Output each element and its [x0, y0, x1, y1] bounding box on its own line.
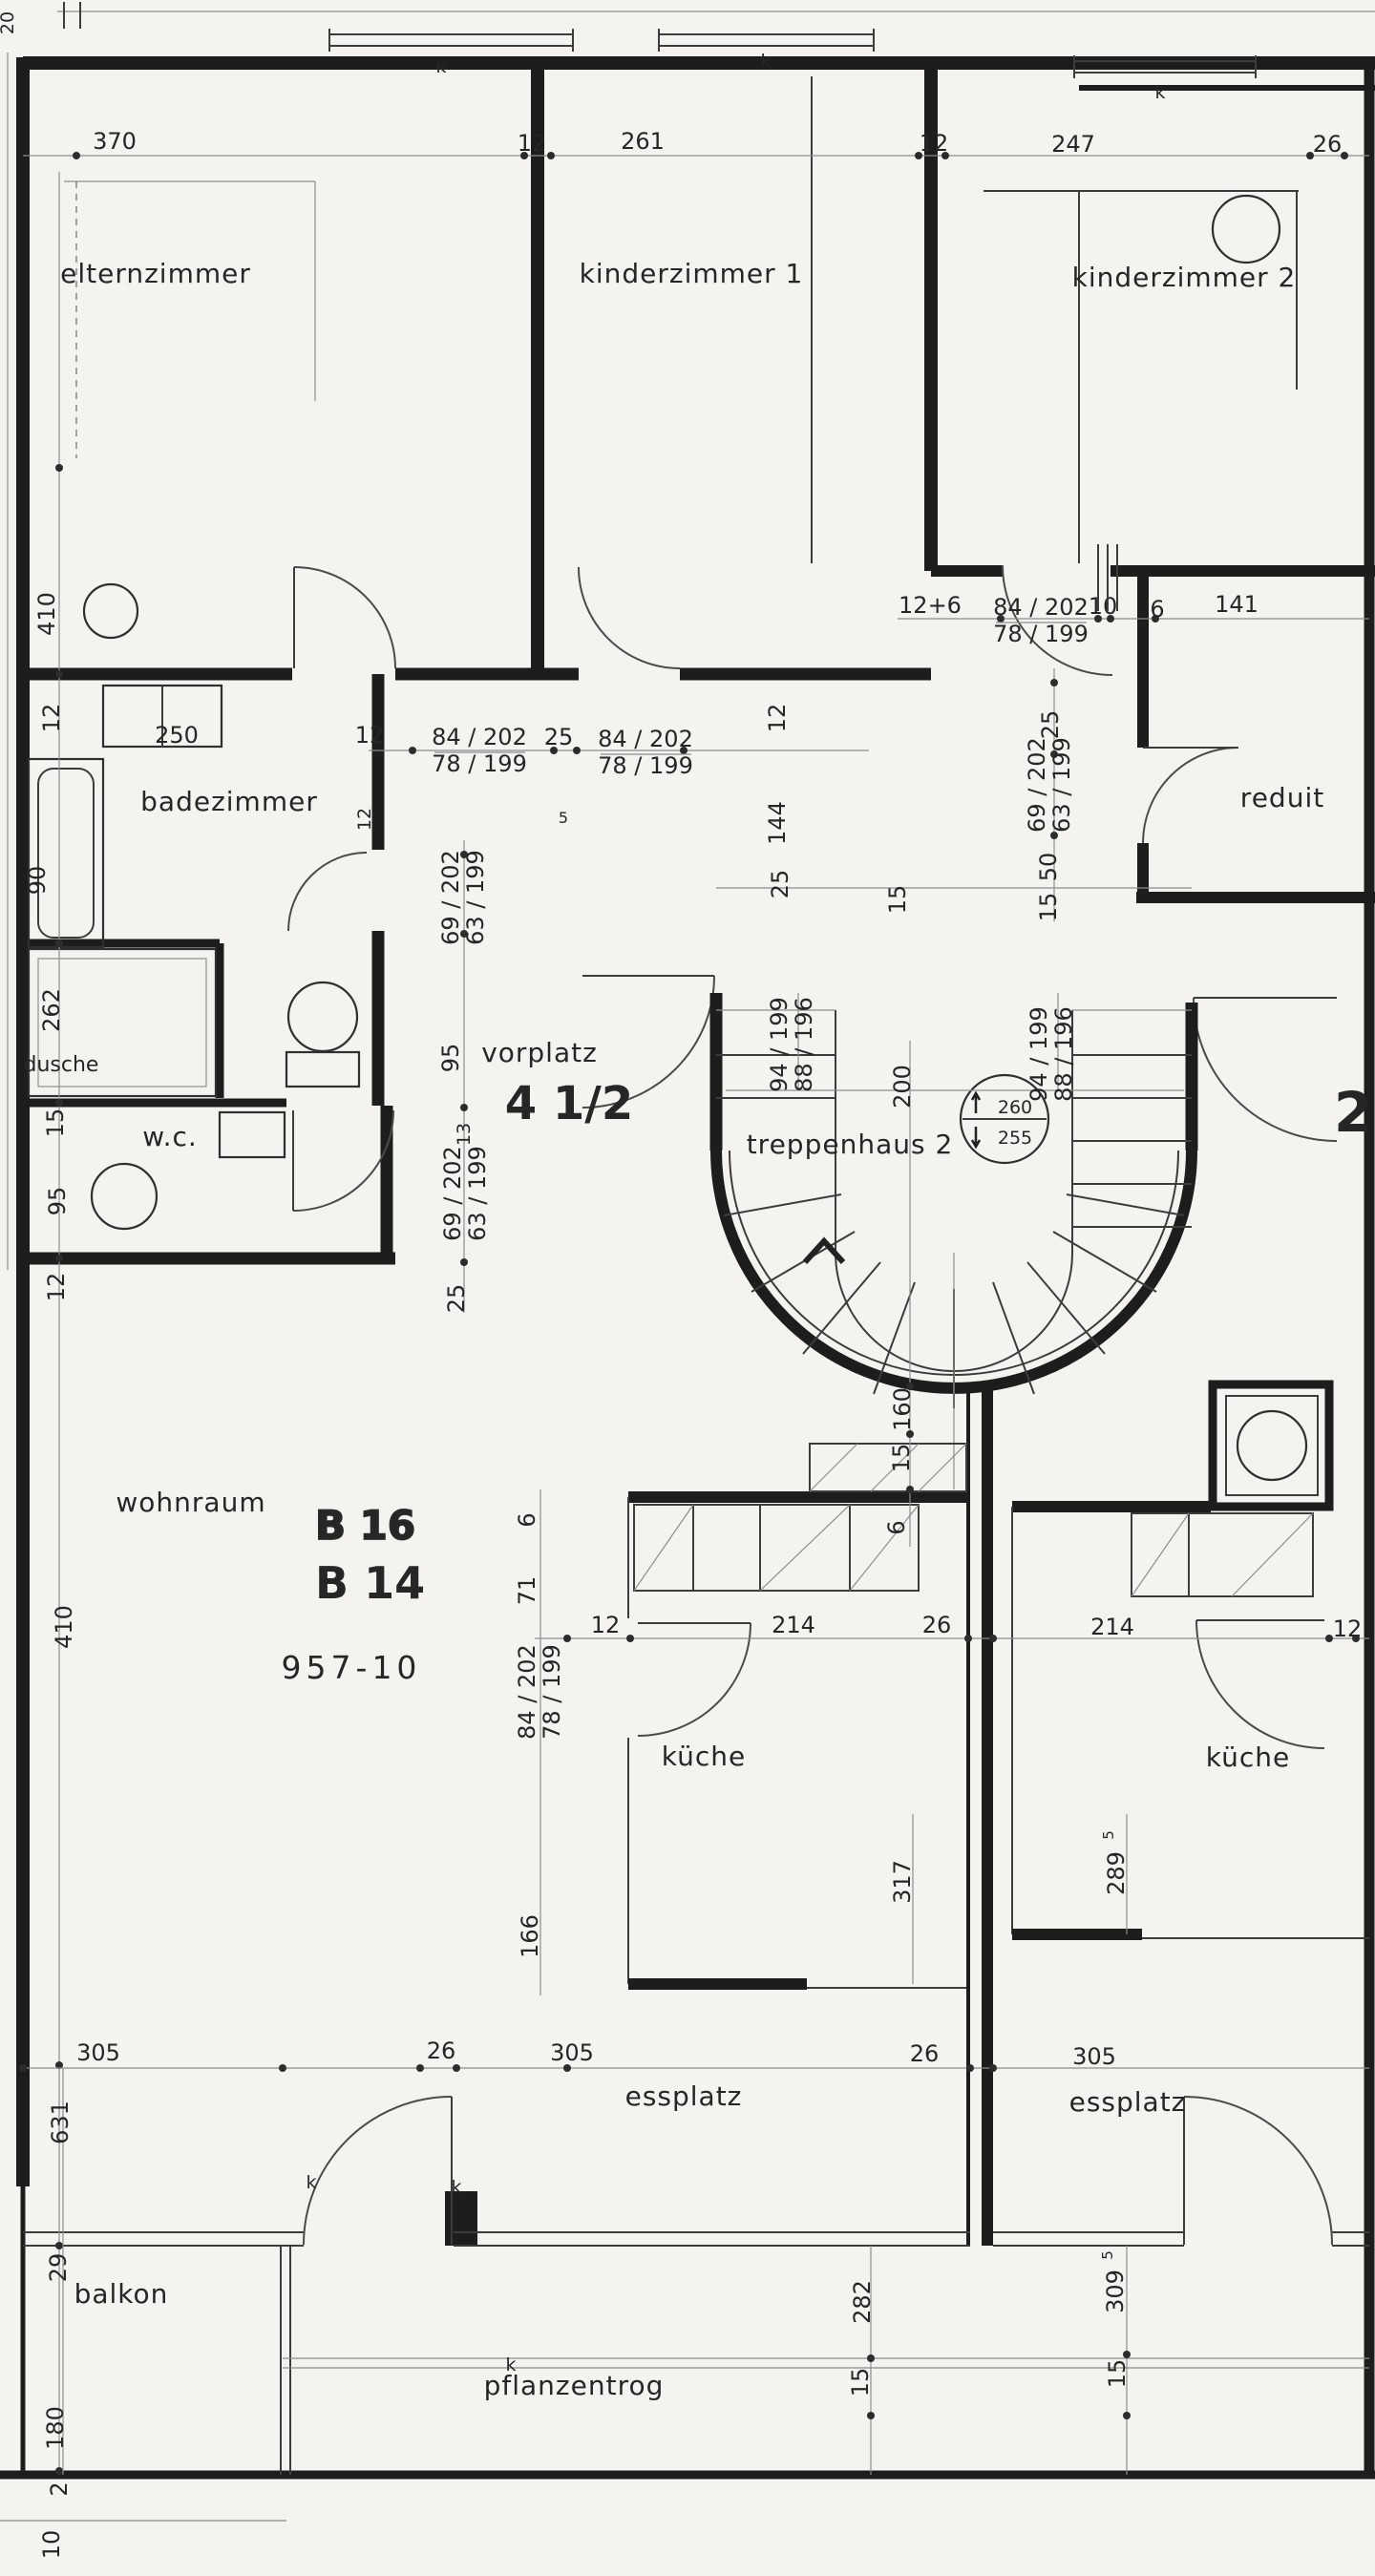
dim-12-c: 12 — [38, 704, 65, 733]
dim-12-d: 12 — [43, 1273, 70, 1302]
room-label-badezimmer: badezimmer — [140, 786, 318, 817]
door-arc-balkon-right — [1184, 2097, 1332, 2245]
door-size-69-202-b: 69 / 202 — [439, 1146, 466, 1241]
door-size-63-199-c: 63 / 199 — [1048, 737, 1075, 833]
door-size-69-202-c: 69 / 202 — [1024, 737, 1050, 833]
dim-12-f: 12 — [354, 808, 375, 831]
unit-label-b14: B 14 — [315, 1557, 425, 1609]
stair-direction-arrow-icon — [805, 1241, 843, 1262]
room-label-elternzimmer: elternzimmer — [60, 258, 251, 289]
dim-15-b: 15 — [1035, 893, 1062, 922]
door-size-84-202-a: 84 / 202 — [432, 724, 527, 750]
unit-label-right-partial: 2 — [1334, 1080, 1372, 1145]
room-label-essplatz-right: essplatz — [1069, 2086, 1187, 2118]
door-size-78-199-c: 78 / 199 — [993, 621, 1089, 647]
door-size-84-202-d: 84 / 202 — [514, 1644, 540, 1740]
dimension-lines — [19, 152, 1369, 2475]
dim-15-f: 15 — [1104, 2359, 1131, 2389]
room-label-balkon: balkon — [74, 2278, 169, 2310]
door-arc-elternzimmer — [294, 567, 395, 668]
door-arc-treppenhaus-right — [1194, 998, 1337, 1141]
dim-25-a: 25 — [544, 724, 574, 750]
dim-6-c: 6 — [514, 1512, 540, 1527]
unit-label-b16: B 16 — [315, 1502, 415, 1549]
dim-200: 200 — [889, 1065, 916, 1109]
dim-29: 29 — [45, 2253, 72, 2283]
dim-631: 631 — [47, 2101, 74, 2144]
dim-180: 180 — [42, 2406, 69, 2450]
door-arc-badezimmer — [288, 853, 367, 931]
window-mark-5: k — [451, 2177, 461, 2198]
door-size-84-202-c: 84 / 202 — [993, 594, 1089, 621]
dim-214-b: 214 — [1090, 1614, 1134, 1640]
dim-95-b: 95 — [437, 1044, 464, 1073]
dim-10-b: 10 — [1089, 593, 1118, 620]
dim-12-i: 12 — [1333, 1615, 1363, 1642]
level-lower: 255 — [998, 1128, 1032, 1149]
window-mark-6: k — [505, 2354, 516, 2375]
dim-282: 282 — [849, 2280, 876, 2324]
dim-25-d: 25 — [1037, 710, 1064, 740]
room-label-wohnraum: wohnraum — [116, 1487, 265, 1518]
dim-25-b: 25 — [767, 870, 793, 899]
dim-410-b: 410 — [51, 1605, 77, 1649]
door-size-63-199-b: 63 / 199 — [464, 1146, 491, 1241]
dim-20: 20 — [0, 11, 18, 34]
door-arc-balkon-left — [304, 2097, 452, 2245]
level-arrow-down-icon — [972, 1127, 980, 1147]
dim-305-a: 305 — [76, 2039, 120, 2066]
dim-71: 71 — [514, 1576, 540, 1606]
dim-15-a: 15 — [42, 1109, 69, 1138]
floor-plan-drawing: 260 255 — [0, 0, 1375, 2576]
doors — [288, 565, 1337, 2245]
dim-26-c: 26 — [427, 2038, 456, 2064]
fixture-circle-elternzimmer — [84, 584, 137, 638]
room-label-kueche-right: küche — [1206, 1742, 1290, 1773]
dim-26-b: 26 — [922, 1612, 952, 1638]
sheet-number: 957-10 — [282, 1649, 422, 1686]
dim-25-c: 25 — [443, 1284, 470, 1314]
dim-12-g: 12 — [764, 704, 791, 733]
dim-90: 90 — [24, 866, 51, 896]
window-mark-2: k — [760, 51, 771, 72]
dim-6-b: 6 — [883, 1520, 910, 1534]
dim-13: 13 — [454, 1123, 475, 1146]
room-label-vorplatz: vorplatz — [481, 1037, 598, 1068]
floor-plan-sheet: 260 255 — [0, 0, 1375, 2576]
door-size-78-199-a: 78 / 199 — [432, 750, 527, 777]
fixtures — [29, 196, 1329, 1596]
dim-261: 261 — [621, 128, 665, 155]
dim-50: 50 — [1035, 853, 1062, 882]
dim-95-a: 95 — [44, 1187, 71, 1216]
dim-309: 309 — [1102, 2270, 1129, 2313]
room-label-treppenhaus: treppenhaus 2 — [747, 1129, 954, 1160]
window-mark-3: k — [1154, 82, 1165, 103]
kitchen-counter-right — [1132, 1513, 1313, 1596]
dim-12-b: 12 — [920, 130, 949, 157]
dim-15-e: 15 — [847, 2368, 874, 2397]
dim-141: 141 — [1215, 591, 1259, 618]
dim-10-a: 10 — [38, 2530, 65, 2560]
labels: elternzimmer kinderzimmer 1 kinderzimmer… — [0, 11, 1372, 2559]
dim-160: 160 — [889, 1387, 916, 1431]
door-size-94-199-a: 94 / 199 — [766, 997, 793, 1092]
appliance-box — [1213, 1384, 1329, 1507]
door-size-69-202-a: 69 / 202 — [437, 850, 464, 945]
door-size-63-199-a: 63 / 199 — [462, 850, 489, 945]
room-label-kinderzimmer1: kinderzimmer 1 — [580, 258, 804, 289]
window-mark-4: k — [306, 2172, 316, 2193]
dim-12p6: 12+6 — [899, 592, 962, 619]
dim-370: 370 — [93, 128, 137, 155]
room-label-dusche: dusche — [24, 1053, 99, 1077]
door-size-78-199-d: 78 / 199 — [539, 1644, 565, 1740]
dim-15-d: 15 — [888, 1444, 915, 1473]
fixture-circle-kinderzimmer2 — [1213, 196, 1280, 263]
dim-166: 166 — [517, 1914, 543, 1958]
room-label-kinderzimmer2: kinderzimmer 2 — [1072, 262, 1297, 293]
dim-6-a: 6 — [1150, 596, 1164, 623]
dim-289: 289 — [1103, 1851, 1130, 1895]
door-arc-kinderzimmer1 — [579, 567, 680, 668]
door-size-88-196-b: 88 / 196 — [1050, 1006, 1077, 1102]
door-size-88-196-a: 88 / 196 — [791, 997, 817, 1092]
unit-size-label: 4 1/2 — [505, 1077, 633, 1130]
kitchen-counter-left — [634, 1505, 919, 1591]
door-size-84-202-b: 84 / 202 — [598, 726, 693, 752]
door-size-78-199-b: 78 / 199 — [598, 752, 693, 779]
door-size-94-199-b: 94 / 199 — [1026, 1006, 1052, 1102]
window-lines — [23, 29, 1369, 2368]
dim-289-sup: 5 — [1100, 1830, 1117, 1840]
door-arc-wc — [293, 1110, 393, 1211]
dim-247: 247 — [1051, 131, 1095, 158]
dim-250: 250 — [155, 722, 199, 749]
dim-2: 2 — [46, 2481, 73, 2496]
room-label-kueche-left: küche — [662, 1741, 746, 1772]
dim-309-sup: 5 — [1099, 2250, 1116, 2260]
door-arc-reduit — [1143, 748, 1238, 843]
dim-305-c: 305 — [1072, 2043, 1116, 2070]
dim-26-a: 26 — [1313, 131, 1343, 158]
spiral-stair: 260 255 — [716, 888, 1192, 1489]
dim-410-a: 410 — [33, 592, 60, 636]
bathtub — [29, 759, 103, 947]
dim-12-e: 12 — [355, 722, 385, 749]
door-arc-kueche-left — [638, 1623, 751, 1736]
window-mark-1: k — [435, 56, 446, 77]
dim-262: 262 — [38, 988, 65, 1032]
room-label-wc: w.c. — [142, 1121, 198, 1152]
dim-26-d: 26 — [910, 2040, 940, 2067]
dim-5: 5 — [559, 809, 568, 827]
dim-144: 144 — [764, 801, 791, 845]
dim-15-c: 15 — [884, 885, 911, 915]
dim-12-a: 12 — [518, 130, 547, 157]
door-arc-kueche-right — [1196, 1620, 1324, 1748]
room-label-reduit: reduit — [1240, 782, 1324, 813]
dim-305-b: 305 — [550, 2039, 594, 2066]
dim-214-a: 214 — [772, 1612, 815, 1638]
dim-317: 317 — [889, 1860, 916, 1904]
room-label-essplatz-left: essplatz — [625, 2080, 743, 2112]
level-arrow-up-icon — [972, 1093, 980, 1113]
dim-12-h: 12 — [591, 1612, 621, 1638]
toilet-badezimmer — [286, 982, 359, 1087]
